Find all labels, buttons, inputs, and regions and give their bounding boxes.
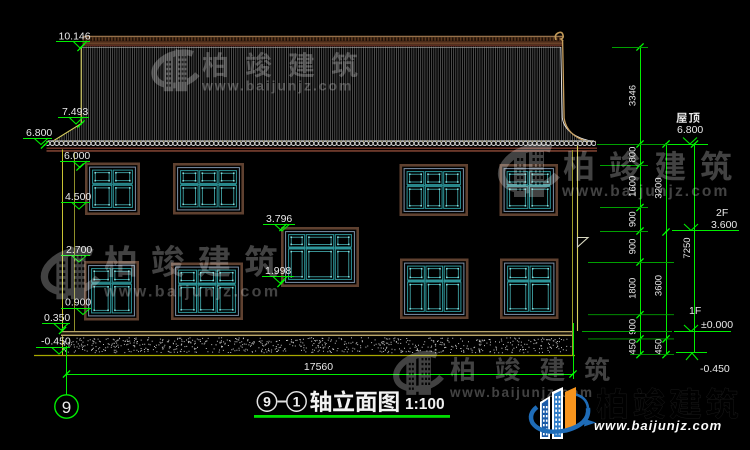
svg-text:2F: 2F: [716, 207, 728, 219]
svg-text:9: 9: [263, 394, 271, 410]
svg-text:17560: 17560: [304, 361, 333, 373]
svg-text:0.350: 0.350: [44, 312, 70, 324]
svg-text:1800: 1800: [628, 278, 639, 299]
svg-text:7.493: 7.493: [62, 106, 88, 118]
svg-text:www.baijunjz.com: www.baijunjz.com: [561, 183, 729, 200]
svg-text:9: 9: [62, 398, 71, 417]
svg-text:10.146: 10.146: [59, 31, 91, 43]
svg-text:www.baijunjz.com: www.baijunjz.com: [594, 418, 722, 433]
svg-text:±0.000: ±0.000: [701, 319, 733, 331]
svg-text:3346: 3346: [628, 85, 639, 106]
svg-text:900: 900: [628, 239, 639, 255]
svg-text:900: 900: [628, 319, 639, 335]
svg-text:3600: 3600: [654, 275, 665, 296]
svg-text:3.796: 3.796: [266, 213, 292, 225]
svg-text:www.baijunjz.com: www.baijunjz.com: [201, 78, 353, 94]
svg-text:-0.450: -0.450: [700, 363, 730, 375]
svg-text:1F: 1F: [689, 305, 701, 317]
svg-text:www.baijunjz.com: www.baijunjz.com: [103, 284, 281, 301]
svg-text:900: 900: [628, 211, 639, 227]
svg-text:1: 1: [293, 394, 301, 410]
svg-text:4.500: 4.500: [65, 191, 91, 203]
svg-text:450: 450: [628, 339, 639, 355]
svg-text:1:100: 1:100: [405, 396, 445, 413]
svg-text:6.000: 6.000: [64, 150, 90, 162]
svg-text:450: 450: [654, 339, 665, 355]
svg-text:7250: 7250: [682, 237, 693, 258]
svg-text:6.800: 6.800: [677, 124, 703, 136]
svg-text:6.800: 6.800: [26, 127, 52, 139]
svg-text:3.600: 3.600: [711, 219, 737, 231]
svg-text:-0.450: -0.450: [41, 336, 71, 348]
